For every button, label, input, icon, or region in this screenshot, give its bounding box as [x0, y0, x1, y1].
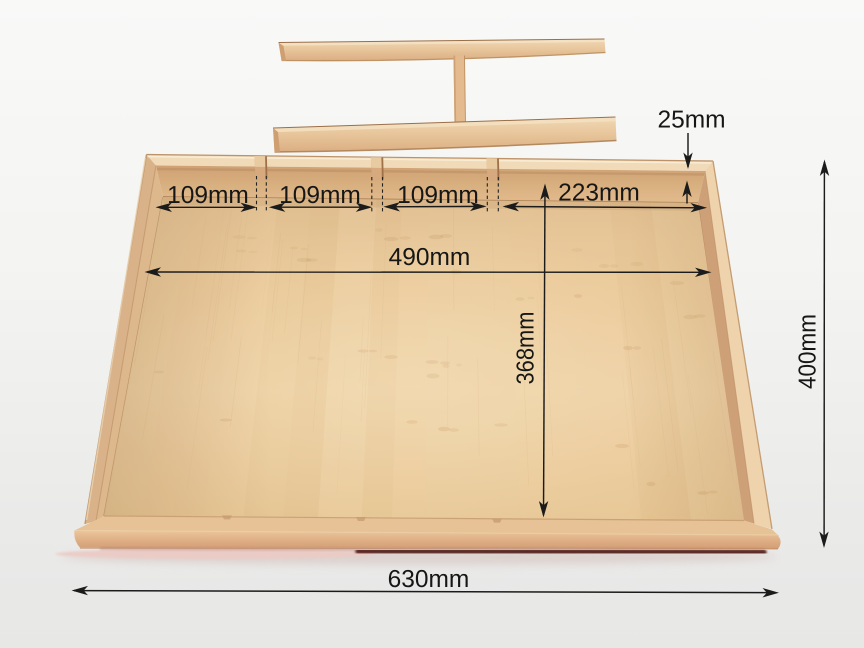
- svg-text:109mm: 109mm: [167, 182, 249, 209]
- svg-text:109mm: 109mm: [397, 182, 479, 209]
- svg-text:25mm: 25mm: [657, 107, 725, 134]
- svg-text:223mm: 223mm: [558, 179, 640, 206]
- svg-text:630mm: 630mm: [388, 566, 470, 593]
- svg-text:490mm: 490mm: [389, 244, 471, 271]
- svg-text:109mm: 109mm: [279, 182, 361, 209]
- svg-text:368mm: 368mm: [513, 312, 540, 385]
- svg-text:400mm: 400mm: [795, 314, 822, 389]
